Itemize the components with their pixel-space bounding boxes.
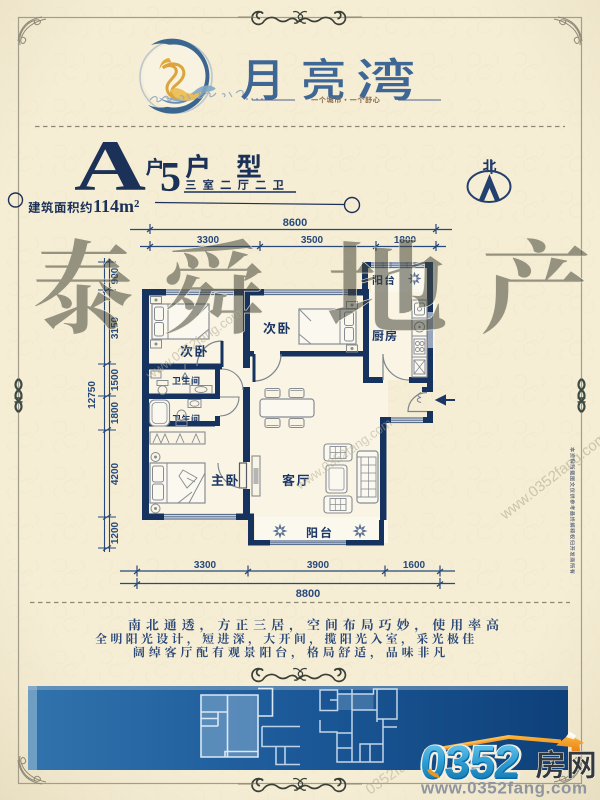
svg-text:A: A (74, 126, 146, 206)
svg-text:www.0352fang.com: www.0352fang.com (420, 779, 588, 798)
svg-text:4200: 4200 (110, 462, 121, 485)
svg-text:1200: 1200 (110, 521, 121, 544)
svg-text:3300: 3300 (194, 560, 217, 571)
svg-text:8600: 8600 (283, 217, 307, 229)
svg-text:5: 5 (160, 155, 181, 201)
svg-text:1800: 1800 (110, 401, 121, 424)
svg-text:1600: 1600 (403, 560, 426, 571)
svg-text:3500: 3500 (301, 235, 324, 246)
svg-text:114m²: 114m² (93, 196, 139, 216)
svg-text:8800: 8800 (296, 588, 320, 600)
svg-text:3900: 3900 (307, 560, 330, 571)
svg-text:12750: 12750 (87, 381, 98, 409)
svg-text:1500: 1500 (110, 368, 121, 391)
